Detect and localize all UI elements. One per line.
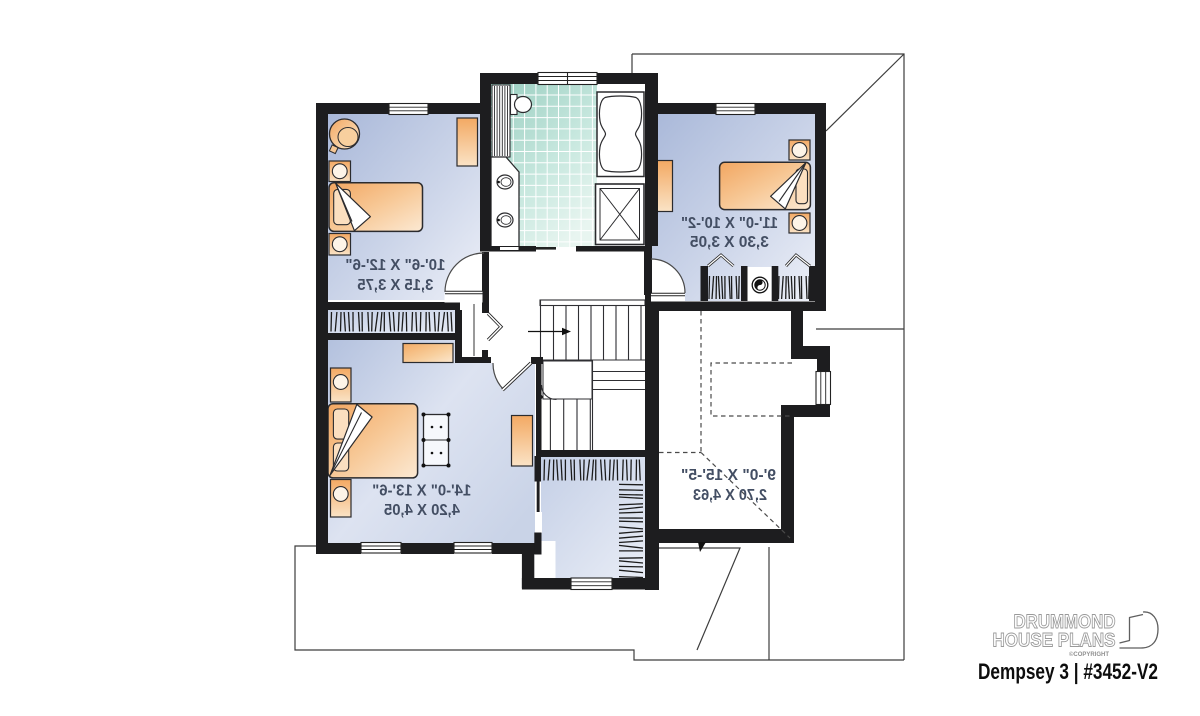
svg-text:11'-0" X 10'-2": 11'-0" X 10'-2" xyxy=(681,215,778,232)
svg-text:Dempsey 3 | #3452-V2: Dempsey 3 | #3452-V2 xyxy=(978,659,1158,684)
svg-text:©COPYRIGHT: ©COPYRIGHT xyxy=(1069,651,1109,658)
svg-text:3,15 X 3,75: 3,15 X 3,75 xyxy=(357,277,433,294)
svg-text:HOUSE PLANS: HOUSE PLANS xyxy=(993,631,1116,652)
svg-text:2,70 X 4,63: 2,70 X 4,63 xyxy=(693,487,767,504)
svg-text:14'-0" X 13'-6": 14'-0" X 13'-6" xyxy=(372,483,471,500)
svg-text:9'-0" X 15'-5": 9'-0" X 15'-5" xyxy=(681,467,776,484)
svg-text:10'-6" X 12'-6": 10'-6" X 12'-6" xyxy=(345,257,445,274)
svg-text:4,20 X 4,05: 4,20 X 4,05 xyxy=(384,502,460,519)
svg-text:3,30 X 3,05: 3,30 X 3,05 xyxy=(690,234,769,251)
